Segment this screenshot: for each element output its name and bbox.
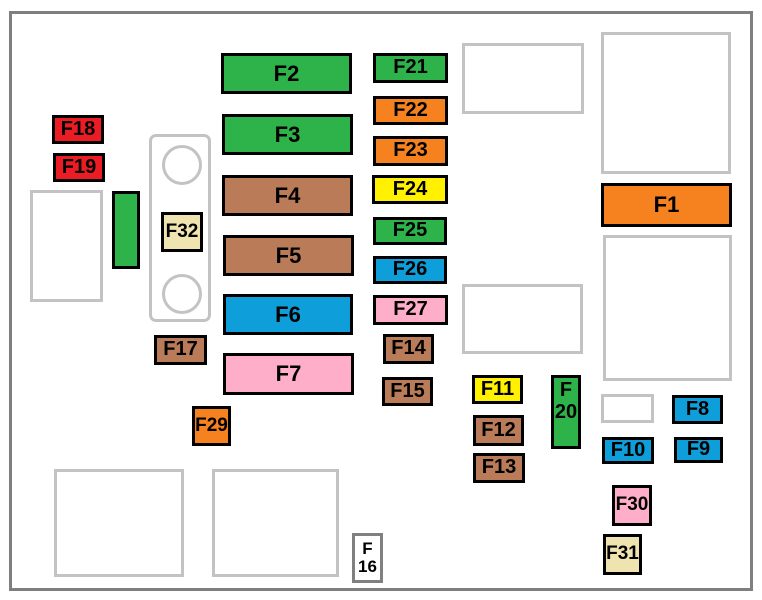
fuse-label: F1 (654, 193, 680, 217)
fuse-f14: F14 (383, 334, 434, 364)
fuse-label: F31 (606, 544, 639, 565)
fuse-relay-bar (112, 191, 140, 269)
fuse-label: F7 (276, 362, 302, 386)
fuse-label: F26 (393, 259, 427, 281)
fuse-f26: F26 (373, 256, 447, 284)
placeholder-bottom-left (54, 469, 184, 577)
fuse-f32: F32 (161, 212, 203, 252)
placeholder-top-middle (462, 43, 584, 114)
connector-circle-bottom (162, 274, 202, 314)
placeholder-small-right (601, 394, 654, 423)
placeholder-middle (462, 284, 583, 354)
fuse-f7: F7 (223, 353, 354, 395)
fuse-f15: F15 (382, 377, 433, 406)
placeholder-bottom-mid (212, 469, 339, 577)
fuse-label: F9 (687, 439, 710, 461)
fuse-f23: F23 (373, 136, 448, 166)
fuse-label: F22 (393, 100, 427, 122)
placeholder-left (30, 190, 103, 302)
connector-circle-top (162, 145, 202, 185)
fuse-f4: F4 (222, 175, 353, 216)
fuse-f11: F11 (472, 375, 523, 404)
fuse-f31: F31 (603, 534, 642, 575)
fuse-label: F30 (616, 495, 649, 516)
fuse-label: F11 (481, 379, 514, 401)
fuse-label: F19 (62, 157, 96, 179)
placeholder-right-middle (603, 235, 732, 381)
fuse-label: F25 (393, 220, 427, 242)
fuse-label: F5 (276, 244, 302, 268)
fuse-f19: F19 (53, 153, 105, 182)
fuse-f6: F6 (223, 294, 353, 335)
fuse-label: F15 (390, 381, 424, 403)
fuse-label: F17 (163, 339, 197, 361)
fuse-f25: F25 (373, 217, 447, 245)
fuse-f5: F5 (223, 235, 354, 276)
fuse-f13: F13 (473, 453, 525, 483)
fuse-f30: F30 (612, 485, 652, 526)
fuse-f27: F27 (373, 295, 448, 325)
fuse-f18: F18 (52, 115, 104, 144)
fuse-label: F4 (275, 184, 301, 208)
fuse-label: F29 (195, 416, 228, 437)
fuse-label: F21 (393, 57, 427, 79)
fuse-label: 16 (358, 558, 377, 576)
fuse-label: F8 (686, 399, 709, 421)
fuse-f12: F12 (473, 415, 524, 446)
fuse-f3: F3 (222, 114, 353, 155)
fuse-label: F18 (61, 119, 95, 141)
fuse-f2: F2 (221, 53, 352, 94)
fuse-label: 20 (555, 402, 577, 424)
fuse-box-diagram: F1F2F3F4F5F6F7F8F9F10F11F12F13F14F15F16F… (0, 0, 762, 600)
fuse-label: F32 (166, 222, 199, 243)
fuse-label: F27 (393, 299, 427, 321)
fuse-label: F24 (393, 179, 427, 201)
fuse-f21: F21 (373, 53, 448, 83)
fuse-f22: F22 (373, 96, 448, 125)
fuse-label: F12 (481, 420, 515, 442)
fuse-f24: F24 (372, 175, 448, 204)
fuse-label: F10 (611, 440, 645, 462)
fuse-f1: F1 (601, 183, 732, 227)
fuse-f16: F16 (352, 533, 383, 583)
fuse-label: F (362, 540, 372, 558)
fuse-f8: F8 (672, 395, 723, 424)
fuse-label: F23 (393, 140, 427, 162)
fuse-label: F3 (275, 123, 301, 147)
placeholder-top-right (601, 32, 731, 174)
fuse-f9: F9 (674, 437, 723, 463)
fuse-label: F13 (482, 457, 516, 479)
fuse-label: F6 (275, 303, 301, 327)
fuse-f17: F17 (154, 335, 207, 365)
fuse-f29: F29 (192, 406, 231, 446)
fuse-f10: F10 (602, 437, 654, 464)
fuse-label: F (560, 380, 572, 402)
fuse-label: F14 (391, 338, 425, 360)
fuse-label: F2 (274, 62, 300, 86)
fuse-f20: F20 (551, 375, 581, 449)
